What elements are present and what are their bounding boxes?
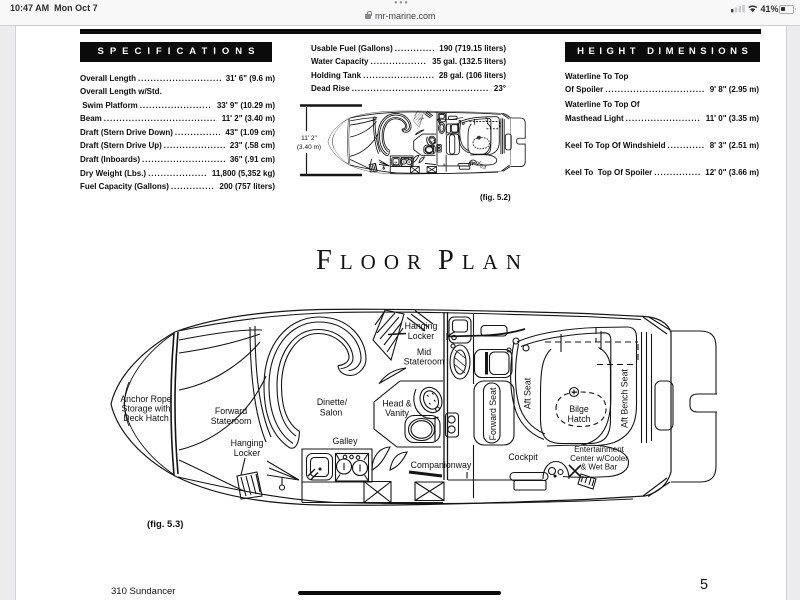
- svg-text:Hanging: Hanging: [231, 438, 264, 448]
- svg-text:Deck Hatch: Deck Hatch: [123, 413, 169, 423]
- svg-text:Anchor Rope: Anchor Rope: [120, 394, 171, 404]
- svg-text:Forward: Forward: [215, 406, 247, 416]
- svg-text:Entertainment: Entertainment: [574, 445, 625, 454]
- svg-text:Hatch: Hatch: [568, 414, 591, 424]
- svg-text:Mid: Mid: [417, 347, 431, 357]
- svg-text:Stateroom: Stateroom: [211, 416, 252, 426]
- svg-text:Dinette/: Dinette/: [317, 397, 348, 407]
- svg-text:Companionway: Companionway: [411, 460, 472, 470]
- svg-text:Cockpit: Cockpit: [508, 452, 538, 462]
- svg-text:Head &: Head &: [382, 399, 411, 409]
- svg-text:Salon: Salon: [320, 408, 343, 418]
- svg-text:Aft Bench Seat: Aft Bench Seat: [620, 369, 630, 428]
- svg-text:Locker: Locker: [408, 331, 434, 341]
- svg-text:Forward Seat: Forward Seat: [488, 387, 498, 440]
- svg-text:Storage with: Storage with: [122, 404, 171, 414]
- svg-text:Hanging: Hanging: [405, 321, 438, 331]
- svg-text:Galley: Galley: [333, 436, 359, 446]
- svg-text:Bilge: Bilge: [569, 404, 589, 414]
- svg-text:Aft Seat: Aft Seat: [523, 377, 533, 409]
- svg-text:Locker: Locker: [234, 448, 260, 458]
- svg-text:11' 2": 11' 2": [301, 135, 317, 142]
- svg-text:& Wet Bar: & Wet Bar: [581, 463, 618, 472]
- svg-text:Vanity: Vanity: [385, 408, 409, 418]
- svg-text:(3.40 m): (3.40 m): [297, 144, 321, 151]
- svg-text:Stateroom: Stateroom: [404, 357, 445, 367]
